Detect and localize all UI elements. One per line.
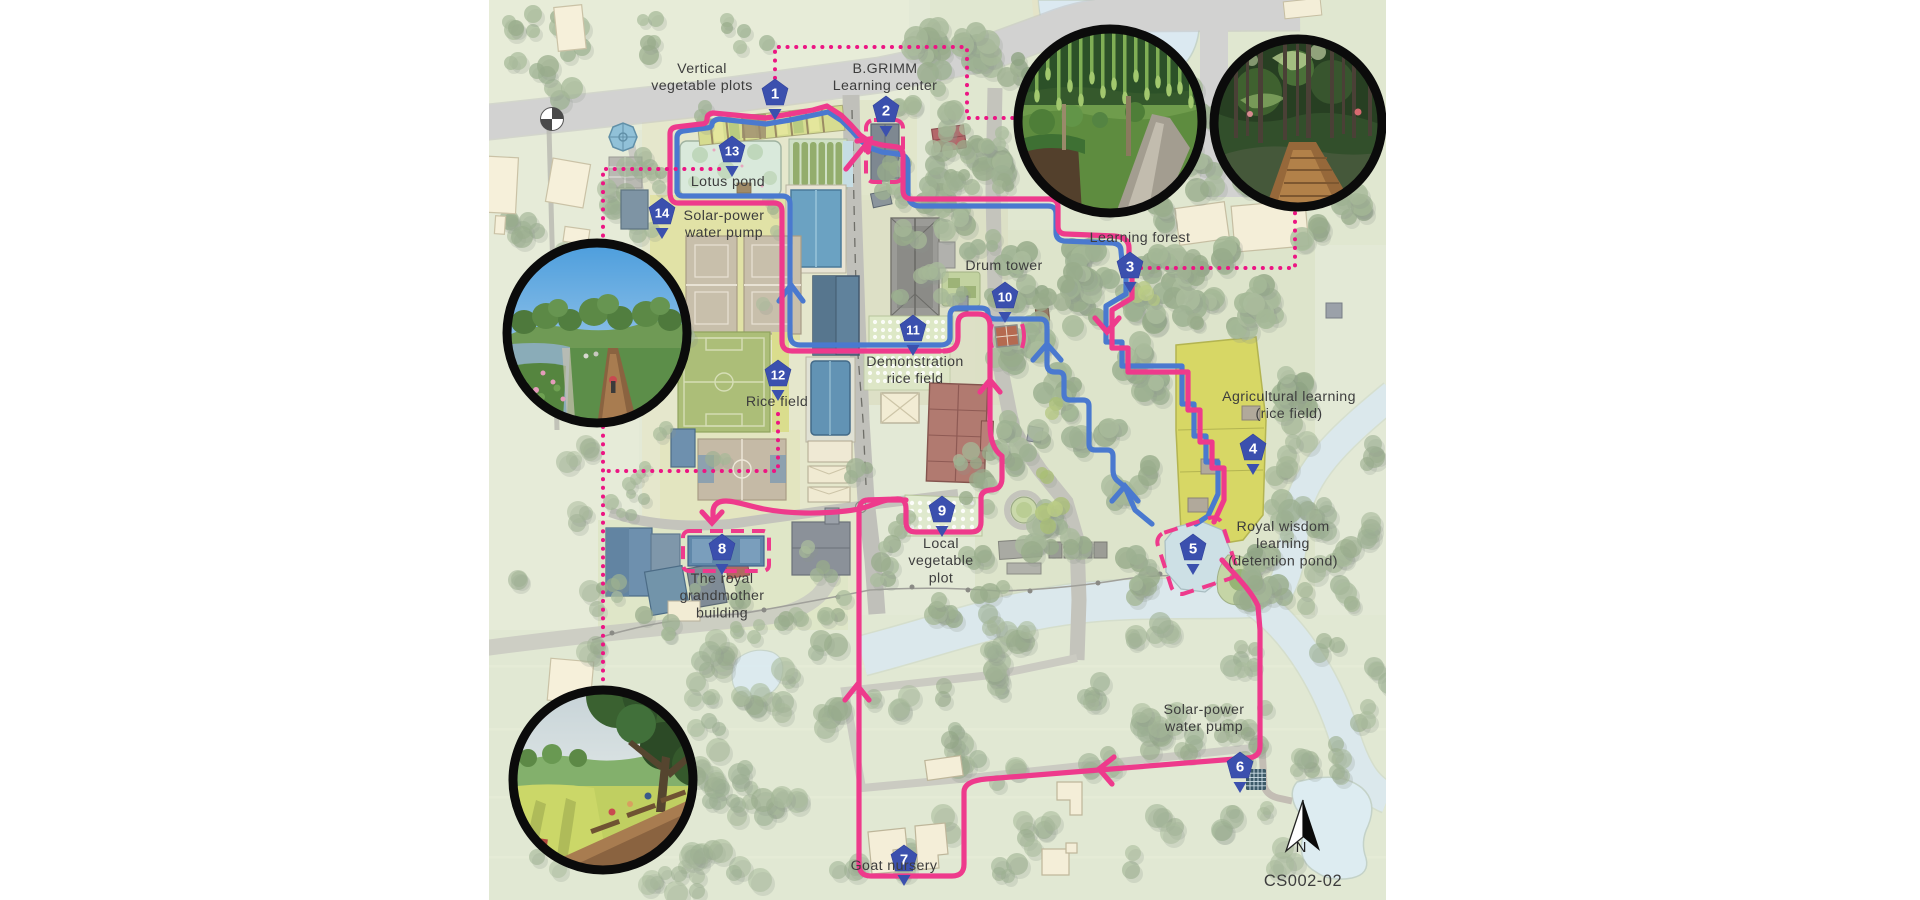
svg-text:Learning forest: Learning forest (1090, 230, 1191, 246)
svg-text:Goat nursery: Goat nursery (851, 858, 938, 874)
svg-text:11: 11 (906, 322, 920, 337)
svg-text:CS002-02: CS002-02 (1264, 872, 1342, 890)
svg-text:3: 3 (1126, 258, 1134, 275)
svg-text:13: 13 (725, 143, 739, 158)
svg-text:Drum tower: Drum tower (965, 258, 1042, 274)
svg-text:N: N (1296, 839, 1307, 856)
svg-text:5: 5 (1189, 540, 1197, 557)
svg-text:8: 8 (718, 540, 726, 557)
svg-text:Lotus pond: Lotus pond (691, 174, 765, 190)
svg-text:Rice field: Rice field (746, 394, 808, 410)
svg-text:10: 10 (998, 289, 1012, 304)
svg-text:6: 6 (1236, 758, 1244, 775)
svg-text:2: 2 (882, 102, 890, 119)
svg-text:12: 12 (771, 367, 785, 382)
svg-text:Solar-powerwater pump: Solar-powerwater pump (684, 208, 765, 241)
svg-text:4: 4 (1249, 440, 1258, 457)
svg-text:1: 1 (771, 85, 779, 102)
svg-text:14: 14 (655, 205, 670, 220)
svg-text:Solar-powerwater pump: Solar-powerwater pump (1164, 702, 1245, 735)
svg-text:9: 9 (938, 502, 946, 519)
